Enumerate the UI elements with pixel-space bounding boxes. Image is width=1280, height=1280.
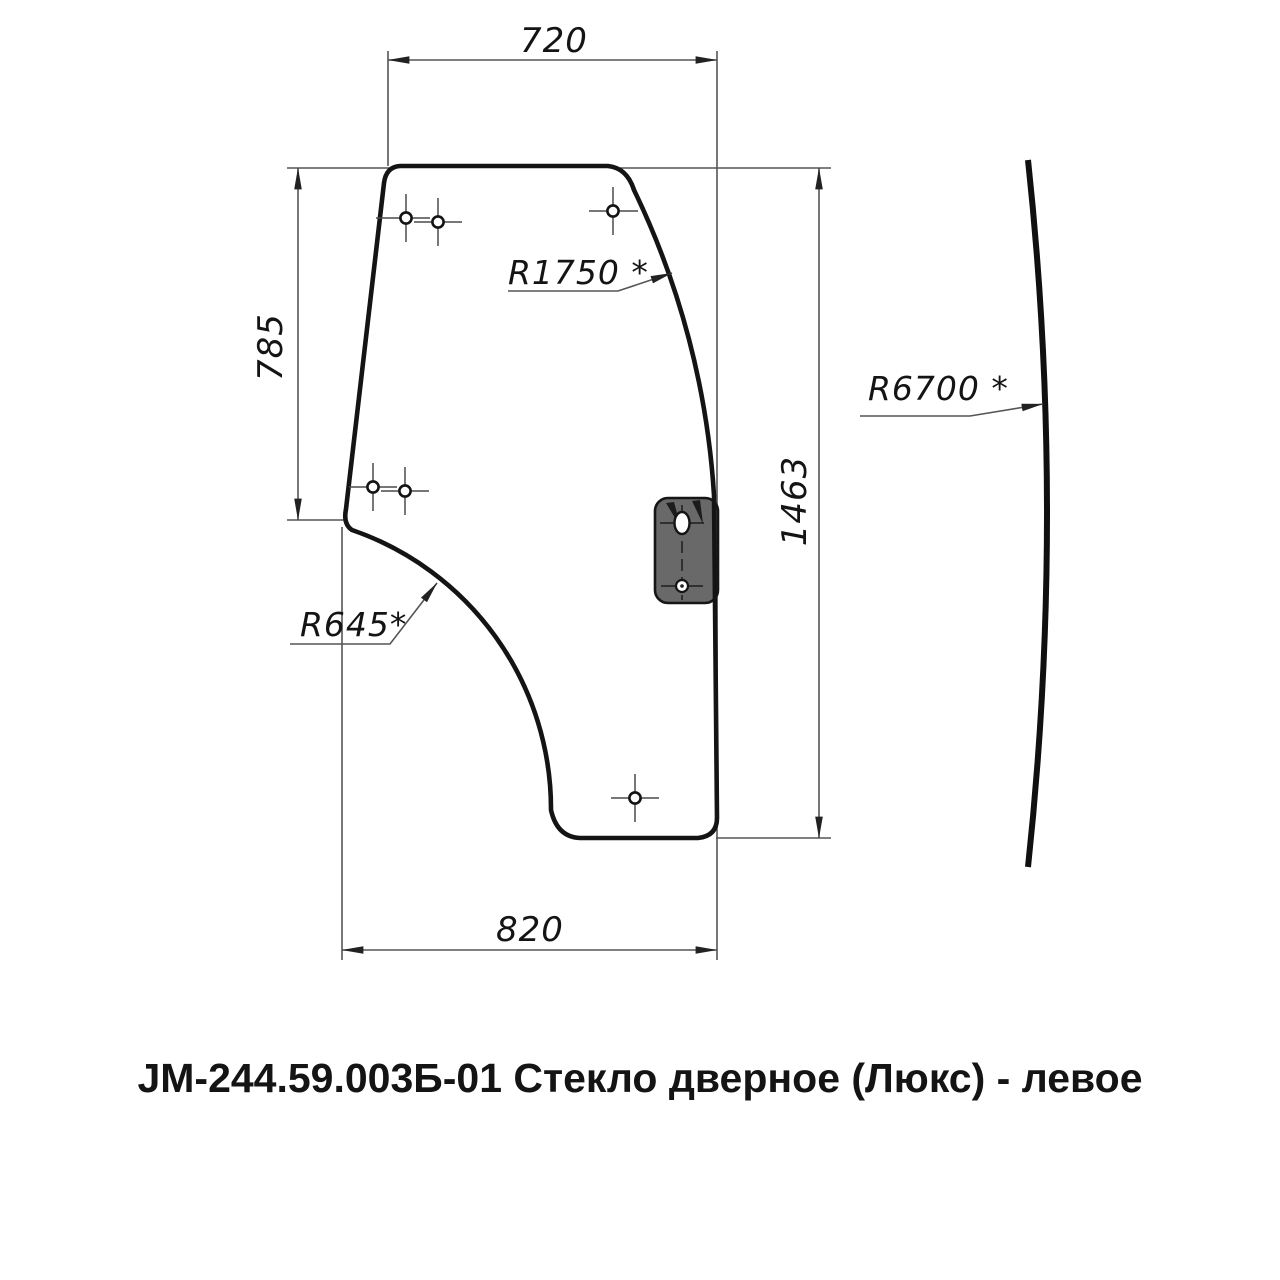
- dimension-bottom-width-value: 820: [496, 910, 564, 950]
- radius-bottom-edge-value: R645*: [300, 605, 407, 644]
- drawing-caption: JM-244.59.003Б-01 Стекло дверное (Люкс) …: [137, 1055, 1142, 1101]
- technical-drawing: 720 785 1463 820: [0, 0, 1280, 1280]
- radius-callout-profile: R6700 *: [860, 369, 1043, 416]
- drawing-page: 720 785 1463 820: [0, 0, 1280, 1280]
- dimension-left-height-value: 785: [251, 313, 291, 381]
- radius-callout-bottom-edge: R645*: [290, 583, 437, 644]
- door-bracket: [655, 498, 718, 603]
- dimension-bottom-width: 820: [342, 910, 717, 950]
- side-profile-view: R6700 *: [860, 160, 1047, 867]
- dimension-top-width: 720: [388, 21, 717, 61]
- bracket-slot-hole: [675, 512, 690, 534]
- radius-callout-top-edge: R1750 *: [508, 253, 672, 292]
- radius-top-edge-value: R1750 *: [508, 253, 649, 292]
- radius-profile-value: R6700 *: [868, 369, 1009, 408]
- dimension-right-height-value: 1463: [775, 456, 815, 547]
- profile-curve: [1028, 160, 1047, 867]
- dimension-left-height: 785: [251, 168, 298, 520]
- dimension-top-width-value: 720: [520, 21, 588, 61]
- bracket-pin-center: [680, 584, 684, 588]
- dimension-right-height: 1463: [775, 168, 819, 838]
